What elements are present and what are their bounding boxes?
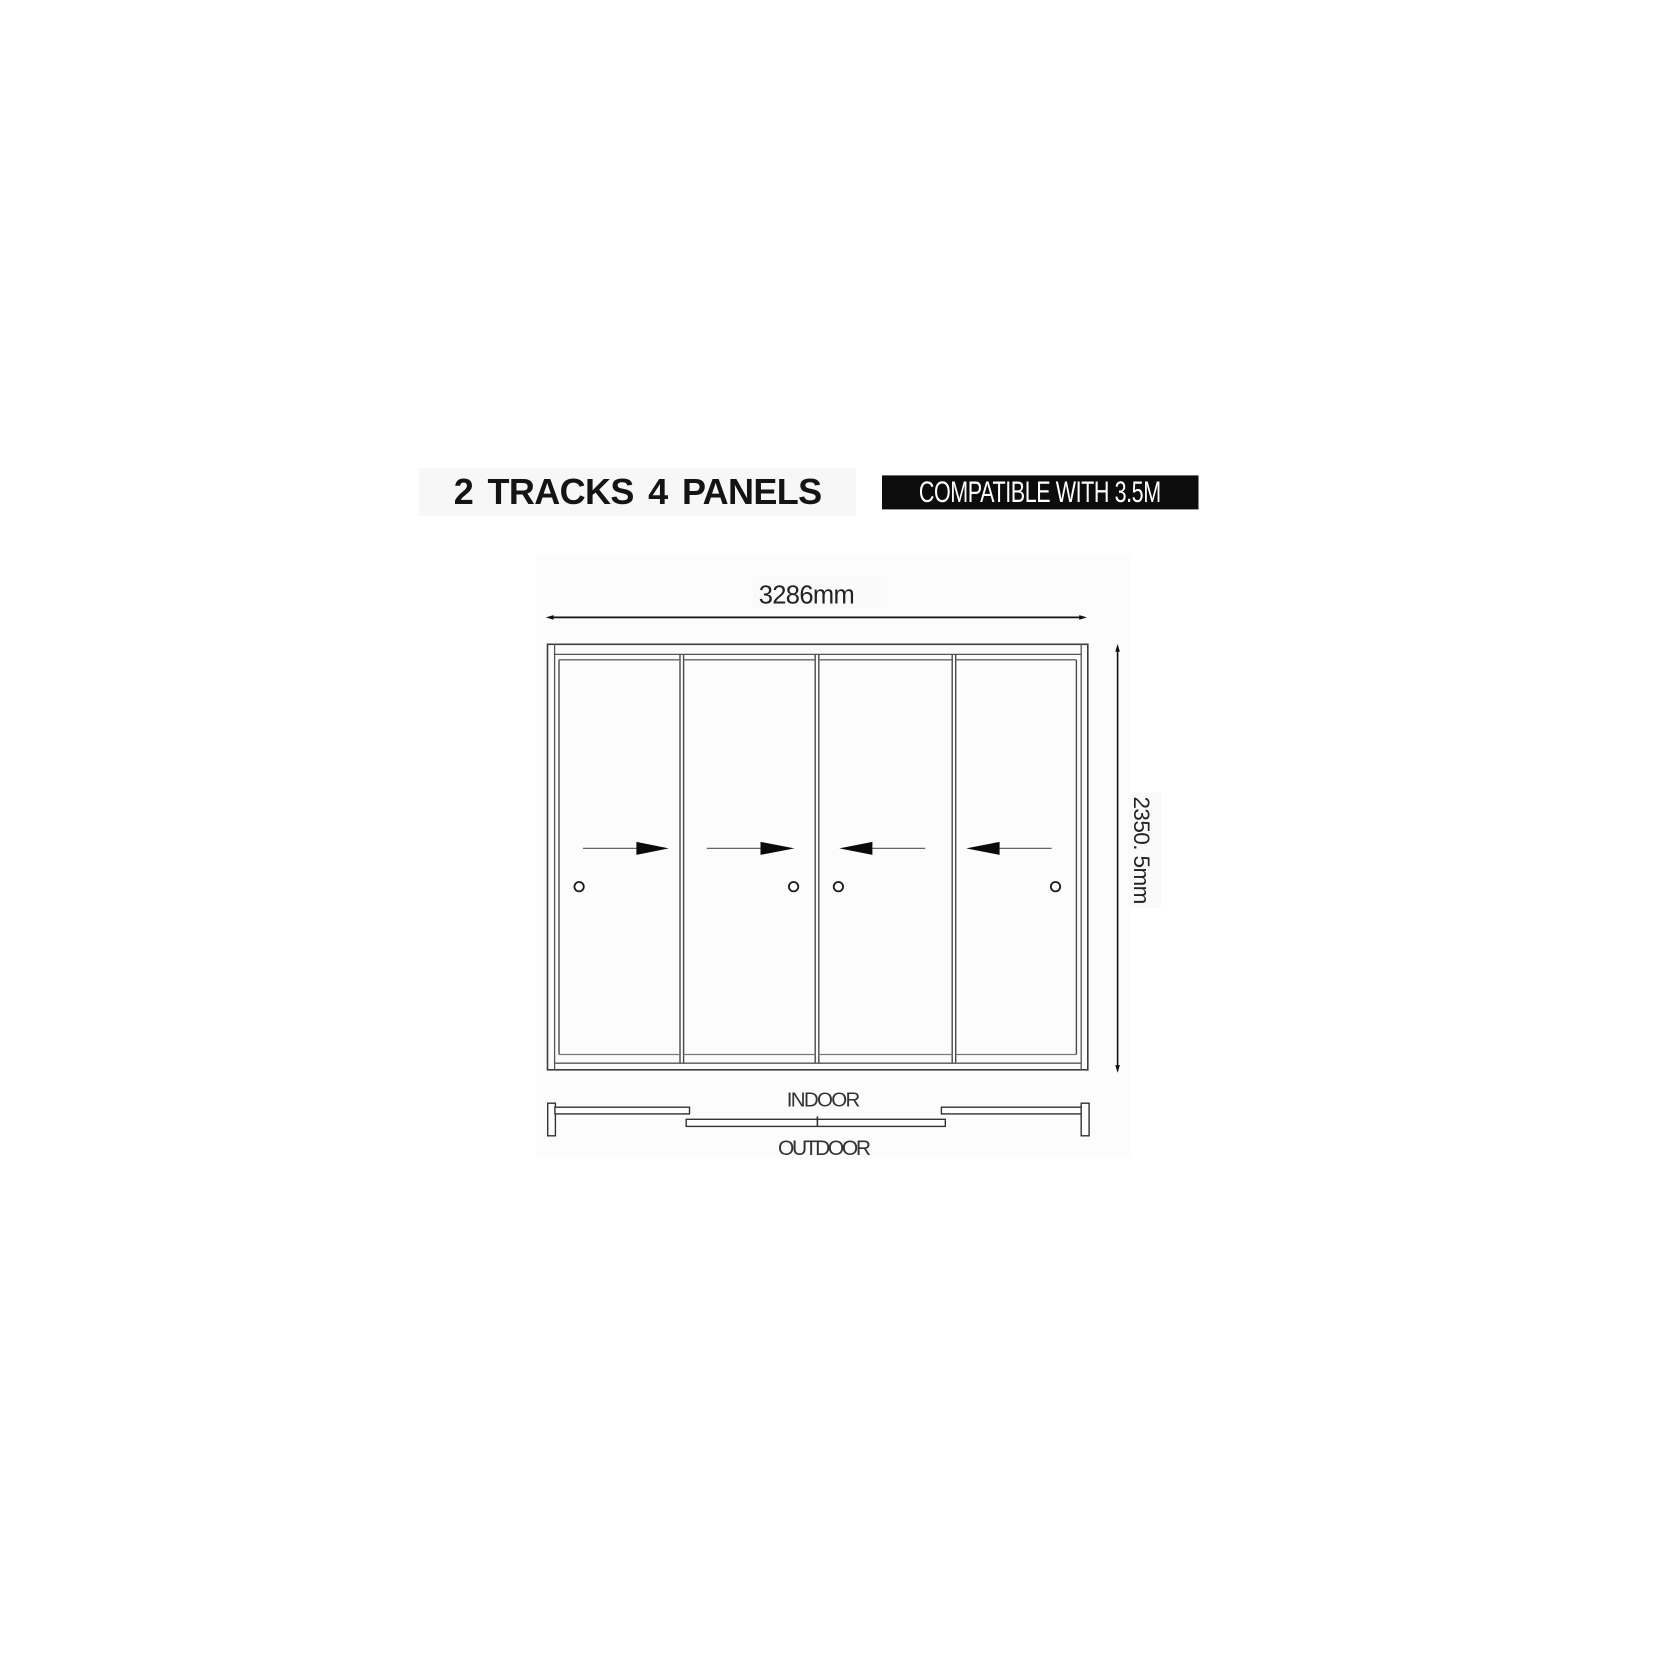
svg-text:3286mm: 3286mm (759, 582, 855, 610)
svg-text:2350. 5mm: 2350. 5mm (1129, 797, 1154, 905)
svg-text:INDOOR: INDOOR (787, 1089, 861, 1112)
svg-text:COMPATIBLE WITH 3.5M: COMPATIBLE WITH 3.5M (919, 477, 1161, 509)
svg-text:OUTDOOR: OUTDOOR (778, 1137, 871, 1160)
svg-text:2 TRACKS 4 PANELS: 2 TRACKS 4 PANELS (454, 471, 823, 512)
